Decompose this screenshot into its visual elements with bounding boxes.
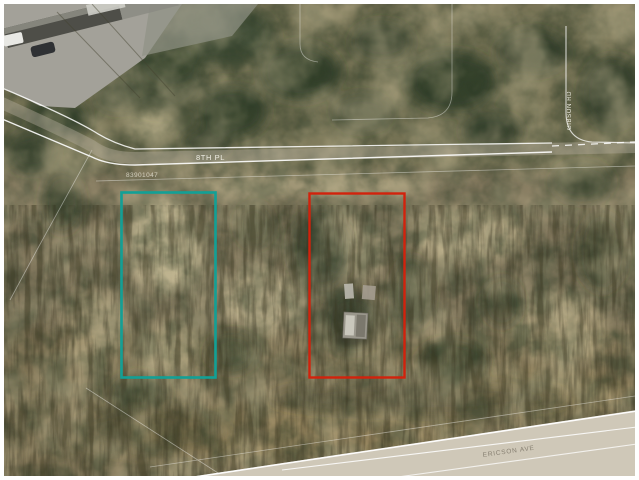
aerial-map: 8TH PL 83901047 ERICSON AVE GIBSON RD xyxy=(0,0,639,480)
aerial-photo[interactable]: 8TH PL 83901047 ERICSON AVE GIBSON RD xyxy=(4,4,635,476)
aerial-photo-canvas: 8TH PL 83901047 ERICSON AVE GIBSON RD xyxy=(4,4,635,476)
small-structure-1 xyxy=(344,283,354,299)
main-structure xyxy=(343,312,368,339)
street-label-top: 8TH PL xyxy=(196,153,225,162)
small-structure-2 xyxy=(362,285,376,300)
street-label-right: GIBSON RD xyxy=(567,91,573,130)
parcel-number-label: 83901047 xyxy=(126,172,158,179)
